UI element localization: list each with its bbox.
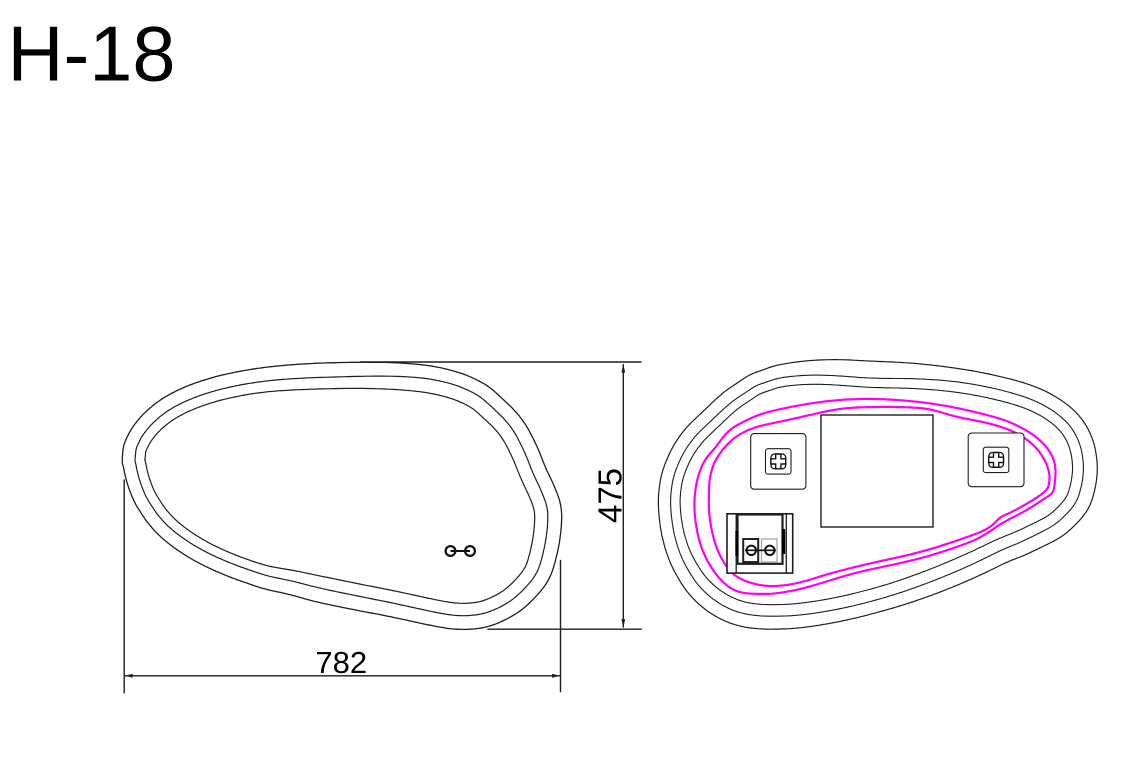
svg-text:H-18: H-18: [8, 12, 176, 98]
svg-text:475: 475: [592, 468, 629, 523]
svg-text:782: 782: [315, 645, 367, 680]
